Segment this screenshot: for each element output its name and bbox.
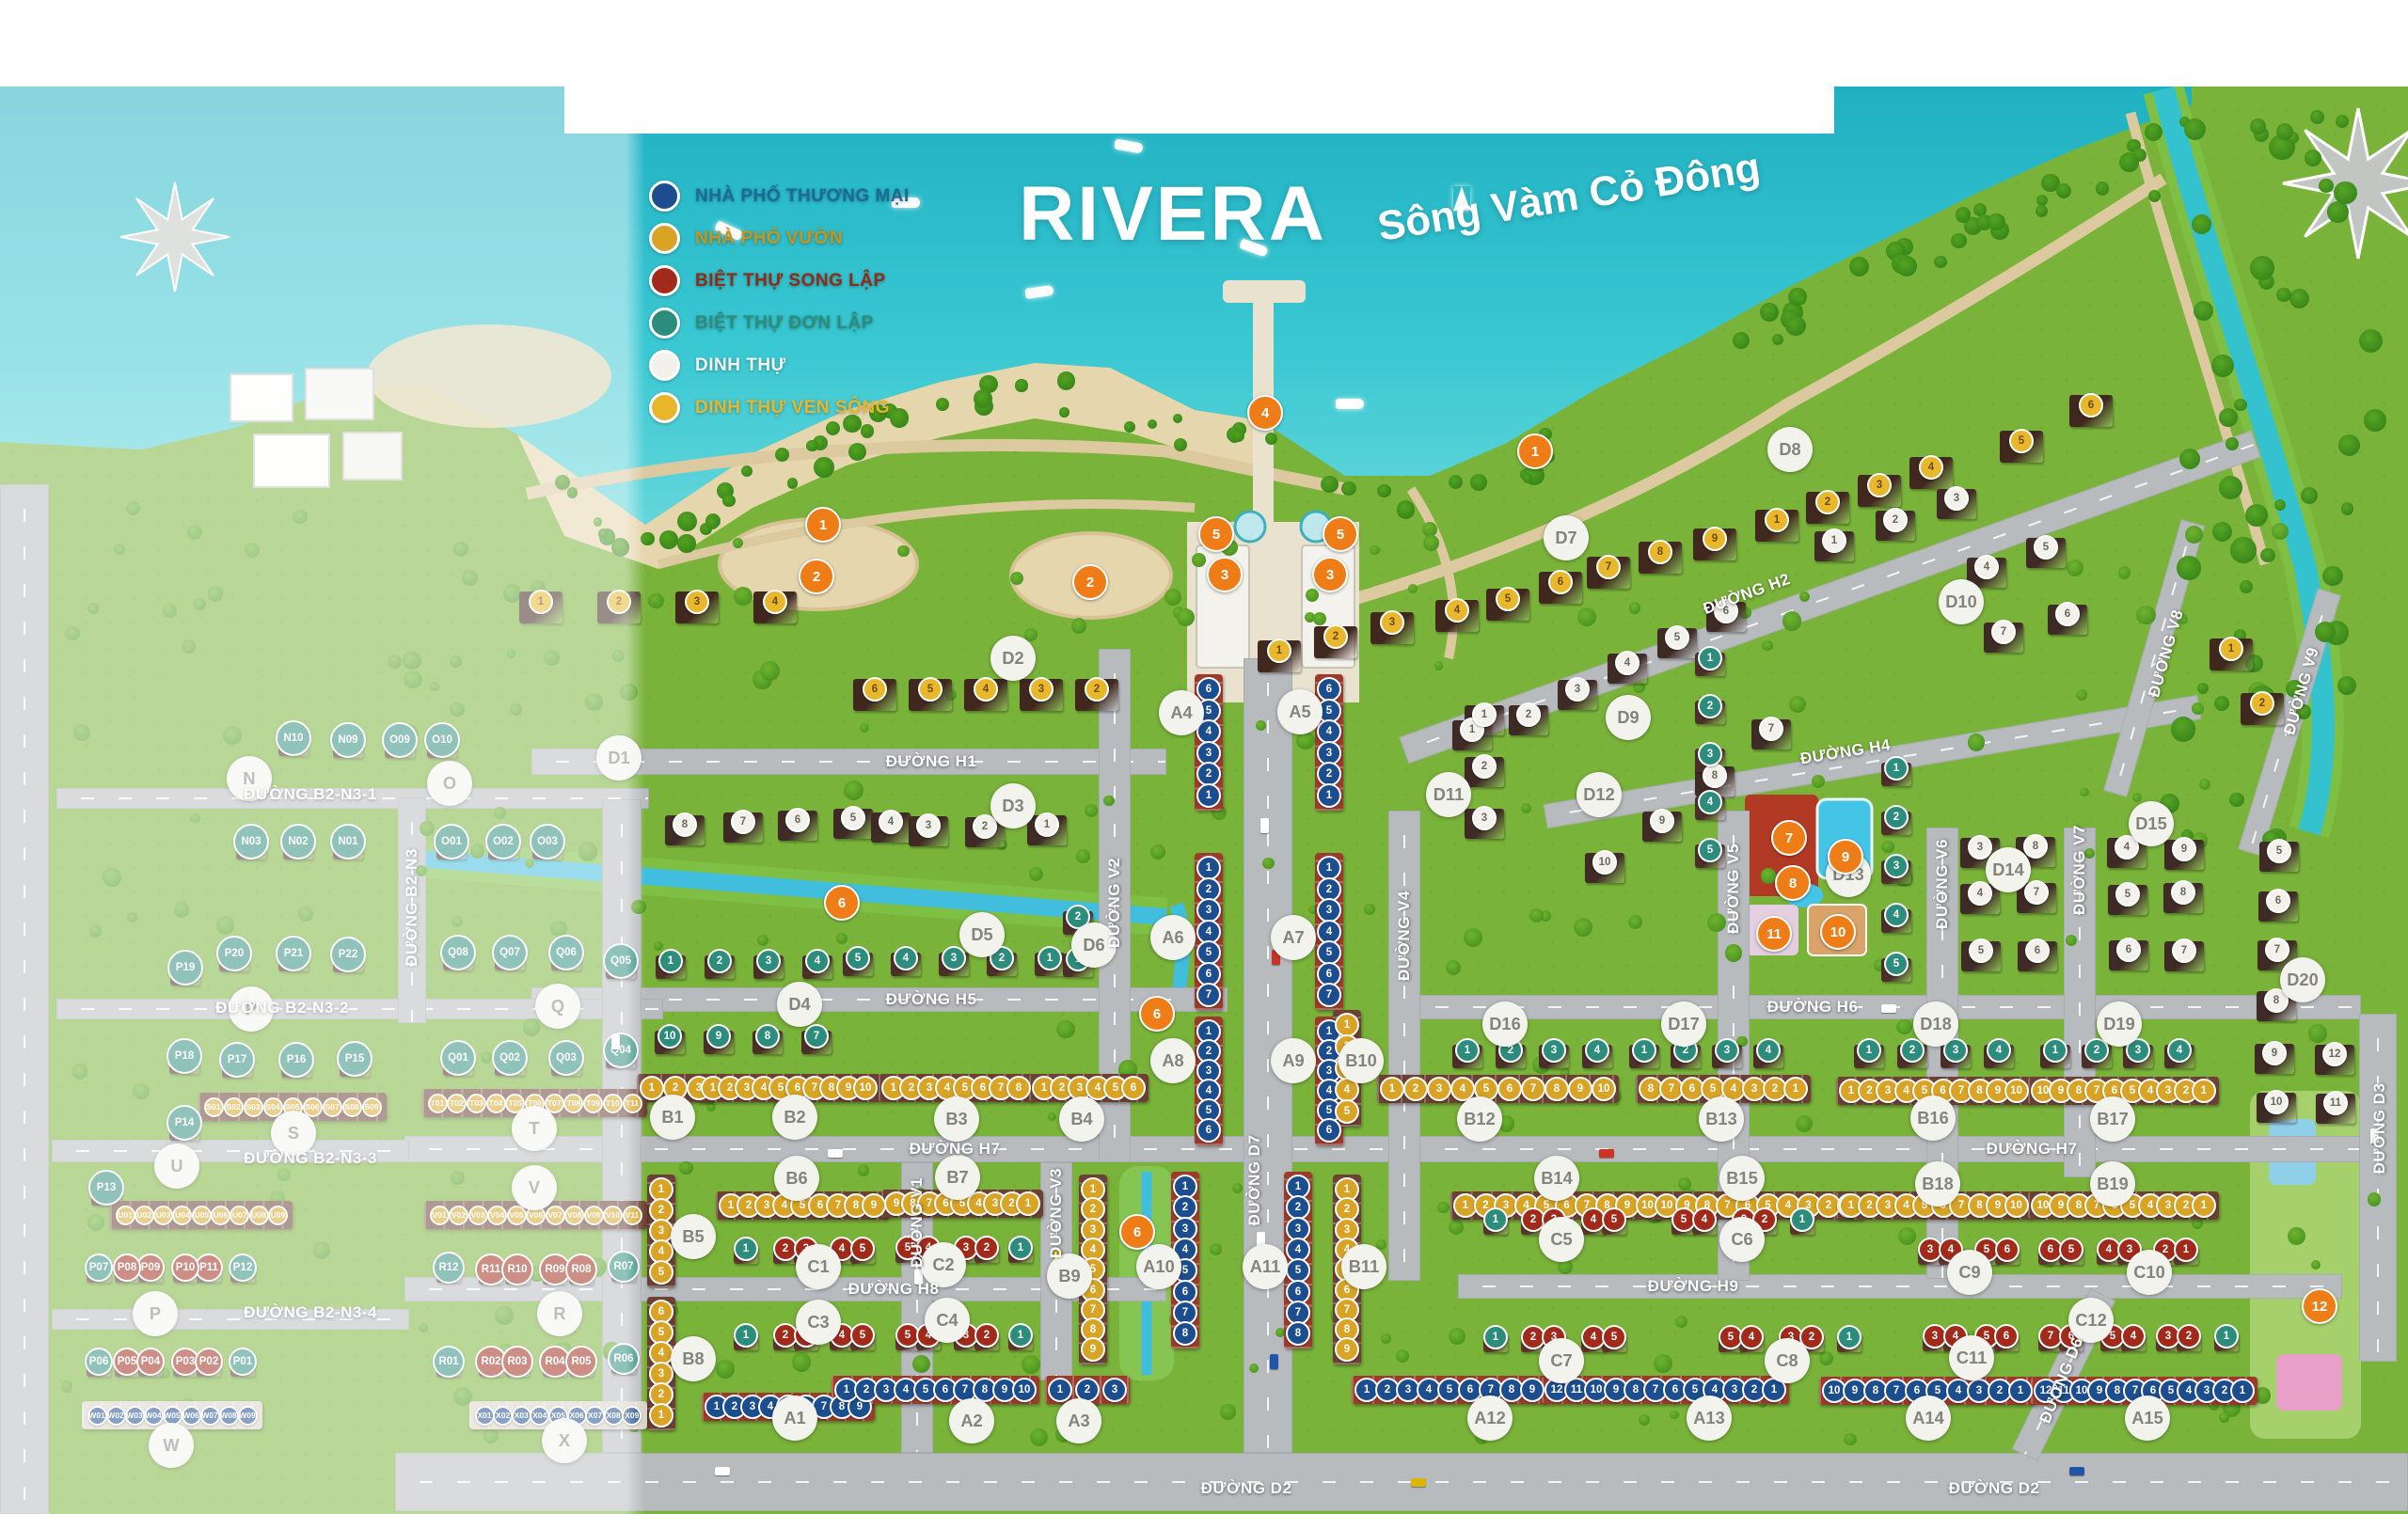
lot-circle-4[interactable]: 4: [1974, 555, 1999, 579]
amenity-marker-1[interactable]: 1: [805, 507, 841, 543]
lot-circle-1[interactable]: 1: [1317, 783, 1341, 808]
lot-circle-5[interactable]: 5: [2059, 1238, 2083, 1262]
lot-circle-1[interactable]: 1: [1016, 1191, 1040, 1216]
lot-circle-R01[interactable]: R01: [433, 1346, 465, 1378]
lot-circle-5[interactable]: 5: [2115, 882, 2140, 907]
lot-circle-3[interactable]: 3: [1472, 806, 1497, 830]
lot-circle-3[interactable]: 3: [1698, 742, 1722, 766]
lot-circle-U06[interactable]: U06: [211, 1206, 230, 1225]
lot-circle-2[interactable]: 2: [1698, 694, 1722, 718]
lot-circle-1[interactable]: 1: [1196, 783, 1221, 808]
lot-circle-1[interactable]: 1: [1822, 528, 1846, 553]
lot-circle-V03[interactable]: V03: [468, 1206, 488, 1225]
lot-circle-9[interactable]: 9: [1520, 1378, 1545, 1402]
lot-circle-2[interactable]: 2: [707, 949, 732, 973]
amenity-marker-2[interactable]: 2: [799, 559, 834, 594]
lot-circle-3[interactable]: 3: [1427, 1077, 1451, 1101]
block-label-D5[interactable]: D5: [959, 912, 1005, 957]
lot-circle-4[interactable]: 4: [2121, 1324, 2146, 1348]
amenity-marker-9[interactable]: 9: [1828, 839, 1863, 875]
lot-circle-Q02[interactable]: Q02: [492, 1040, 528, 1076]
lot-circle-U02[interactable]: U02: [135, 1206, 154, 1225]
lot-circle-1[interactable]: 1: [2230, 1379, 2255, 1403]
lot-circle-5[interactable]: 5: [2034, 535, 2058, 560]
block-label-C7[interactable]: C7: [1539, 1338, 1584, 1383]
lot-circle-10[interactable]: 10: [1592, 1077, 1616, 1101]
lot-circle-5[interactable]: 5: [1496, 587, 1520, 611]
lot-circle-P01[interactable]: P01: [229, 1348, 257, 1376]
lot-circle-6[interactable]: 6: [2025, 938, 2050, 963]
lot-circle-1[interactable]: 1: [1380, 1077, 1404, 1101]
lot-circle-3[interactable]: 3: [1542, 1038, 1566, 1063]
lot-circle-6[interactable]: 6: [1497, 1077, 1522, 1101]
lot-circle-R08[interactable]: R08: [565, 1254, 597, 1285]
lot-circle-N03[interactable]: N03: [233, 824, 269, 860]
lot-circle-X07[interactable]: X07: [585, 1406, 605, 1426]
block-label-B18[interactable]: B18: [1915, 1161, 1960, 1206]
lot-circle-9[interactable]: 9: [1703, 527, 1727, 551]
lot-circle-N02[interactable]: N02: [280, 824, 316, 860]
block-label-D2[interactable]: D2: [990, 636, 1036, 681]
lot-circle-1[interactable]: 1: [734, 1237, 758, 1261]
lot-circle-X01[interactable]: X01: [475, 1406, 495, 1426]
block-label-B7[interactable]: B7: [935, 1155, 980, 1200]
lot-circle-7[interactable]: 7: [1991, 620, 2016, 644]
block-label-A9[interactable]: A9: [1271, 1038, 1316, 1083]
lot-circle-S03[interactable]: S03: [244, 1097, 263, 1117]
lot-circle-6[interactable]: 6: [1548, 570, 1573, 594]
lot-circle-T04[interactable]: T04: [486, 1094, 506, 1113]
lot-circle-O01[interactable]: O01: [434, 824, 469, 860]
amenity-marker-6[interactable]: 6: [824, 885, 860, 921]
lot-circle-T10[interactable]: T10: [603, 1094, 623, 1113]
lot-circle-3[interactable]: 3: [756, 949, 781, 973]
lot-circle-9[interactable]: 9: [2172, 837, 2196, 861]
block-label-B2[interactable]: B2: [772, 1095, 817, 1140]
block-label-B5[interactable]: B5: [671, 1214, 716, 1259]
lot-circle-W06[interactable]: W06: [182, 1406, 201, 1426]
lot-circle-1[interactable]: 1: [2192, 1193, 2216, 1218]
lot-circle-1[interactable]: 1: [1790, 1207, 1814, 1232]
lot-circle-5[interactable]: 5: [2009, 429, 2034, 453]
block-label-A10[interactable]: A10: [1136, 1244, 1181, 1289]
block-label-D14[interactable]: D14: [1986, 847, 2031, 892]
lot-circle-S09[interactable]: S09: [362, 1097, 382, 1117]
lot-circle-T11[interactable]: T11: [623, 1094, 642, 1113]
block-label-B11[interactable]: B11: [1341, 1244, 1386, 1289]
block-label-W[interactable]: W: [149, 1423, 194, 1468]
lot-circle-1[interactable]: 1: [1008, 1323, 1033, 1348]
lot-circle-V04[interactable]: V04: [487, 1206, 507, 1225]
lot-circle-4[interactable]: 4: [763, 590, 787, 614]
lot-circle-P07[interactable]: P07: [85, 1254, 113, 1282]
lot-circle-5[interactable]: 5: [918, 677, 943, 702]
lot-circle-6[interactable]: 6: [1196, 1118, 1221, 1143]
lot-circle-S01[interactable]: S01: [204, 1097, 224, 1117]
lot-circle-W02[interactable]: W02: [106, 1406, 126, 1426]
block-label-B15[interactable]: B15: [1719, 1156, 1765, 1201]
lot-circle-3[interactable]: 3: [1565, 677, 1590, 702]
lot-circle-3[interactable]: 3: [1867, 473, 1892, 497]
block-label-B9[interactable]: B9: [1047, 1254, 1092, 1299]
lot-circle-5[interactable]: 5: [1335, 1099, 1359, 1124]
block-label-D12[interactable]: D12: [1576, 772, 1622, 817]
block-label-D1[interactable]: D1: [596, 735, 642, 781]
lot-circle-V11[interactable]: V11: [623, 1206, 642, 1225]
block-label-B12[interactable]: B12: [1457, 1096, 1502, 1142]
lot-circle-5[interactable]: 5: [841, 806, 865, 830]
lot-circle-8[interactable]: 8: [673, 812, 697, 837]
lot-circle-P12[interactable]: P12: [229, 1254, 257, 1282]
lot-circle-7[interactable]: 7: [2024, 880, 2049, 905]
lot-circle-7[interactable]: 7: [1521, 1077, 1545, 1101]
lot-circle-Q08[interactable]: Q08: [440, 935, 476, 970]
lot-circle-R12[interactable]: R12: [433, 1252, 465, 1284]
lot-circle-X03[interactable]: X03: [512, 1406, 531, 1426]
lot-circle-P20[interactable]: P20: [216, 936, 252, 971]
amenity-marker-1[interactable]: 1: [1517, 434, 1553, 469]
lot-circle-8[interactable]: 8: [1173, 1321, 1197, 1346]
lot-circle-8[interactable]: 8: [2023, 834, 2048, 859]
lot-circle-U05[interactable]: U05: [192, 1206, 212, 1225]
lot-circle-4[interactable]: 4: [1756, 1038, 1781, 1063]
lot-circle-4[interactable]: 4: [1615, 651, 1640, 675]
block-label-C9[interactable]: C9: [1947, 1250, 1992, 1295]
lot-circle-V10[interactable]: V10: [603, 1206, 623, 1225]
lot-circle-4[interactable]: 4: [1692, 1207, 1717, 1232]
lot-circle-P13[interactable]: P13: [88, 1170, 124, 1206]
block-label-V[interactable]: V: [512, 1165, 557, 1210]
lot-circle-R05[interactable]: R05: [565, 1346, 597, 1378]
lot-circle-P19[interactable]: P19: [167, 950, 203, 986]
lot-circle-T09[interactable]: T09: [583, 1094, 603, 1113]
amenity-marker-7[interactable]: 7: [1771, 820, 1807, 856]
lot-circle-5[interactable]: 5: [846, 946, 870, 970]
lot-circle-W01[interactable]: W01: [87, 1406, 107, 1426]
block-label-A11[interactable]: A11: [1243, 1244, 1288, 1289]
block-label-A7[interactable]: A7: [1271, 915, 1316, 960]
lot-circle-1[interactable]: 1: [1008, 1236, 1033, 1260]
lot-circle-R07[interactable]: R07: [608, 1251, 640, 1283]
lot-circle-U03[interactable]: U03: [153, 1206, 173, 1225]
lot-circle-1[interactable]: 1: [529, 590, 553, 614]
block-label-A4[interactable]: A4: [1159, 690, 1204, 735]
lot-circle-5[interactable]: 5: [1969, 938, 1993, 963]
block-label-C4[interactable]: C4: [925, 1298, 970, 1343]
amenity-marker-10[interactable]: 10: [1820, 914, 1856, 950]
lot-circle-2[interactable]: 2: [974, 1236, 999, 1260]
lot-circle-2[interactable]: 2: [1900, 1038, 1925, 1063]
lot-circle-2[interactable]: 2: [1085, 677, 1109, 702]
lot-circle-4[interactable]: 4: [1445, 598, 1469, 623]
lot-circle-9[interactable]: 9: [706, 1024, 731, 1049]
lot-circle-7[interactable]: 7: [1596, 555, 1621, 579]
lot-circle-4[interactable]: 4: [1739, 1325, 1764, 1349]
lot-circle-1[interactable]: 1: [1884, 756, 1909, 781]
block-label-D8[interactable]: D8: [1767, 427, 1813, 472]
lot-circle-W08[interactable]: W08: [219, 1406, 239, 1426]
lot-circle-1[interactable]: 1: [640, 1076, 664, 1100]
lot-circle-1[interactable]: 1: [1048, 1378, 1072, 1402]
lot-circle-3[interactable]: 3: [942, 946, 966, 970]
lot-circle-5[interactable]: 5: [1602, 1207, 1626, 1232]
lot-circle-R10[interactable]: R10: [501, 1254, 533, 1285]
lot-circle-X08[interactable]: X08: [604, 1406, 624, 1426]
block-label-B1[interactable]: B1: [650, 1095, 695, 1140]
lot-circle-3[interactable]: 3: [1944, 486, 1969, 511]
amenity-marker-3[interactable]: 3: [1312, 557, 1348, 592]
block-label-B13[interactable]: B13: [1699, 1096, 1744, 1142]
lot-circle-1[interactable]: 1: [1765, 508, 1789, 532]
lot-circle-Q05[interactable]: Q05: [603, 943, 639, 979]
lot-circle-4[interactable]: 4: [1987, 1038, 2011, 1063]
block-label-X[interactable]: X: [542, 1418, 587, 1463]
lot-circle-R06[interactable]: R06: [608, 1343, 640, 1375]
block-label-D19[interactable]: D19: [2097, 1001, 2142, 1047]
lot-circle-10[interactable]: 10: [2004, 1193, 2029, 1218]
lot-circle-P14[interactable]: P14: [166, 1105, 202, 1141]
lot-circle-4[interactable]: 4: [1919, 455, 1943, 480]
lot-circle-9[interactable]: 9: [2262, 1041, 2287, 1065]
block-label-P[interactable]: P: [133, 1291, 178, 1336]
lot-circle-S08[interactable]: S08: [342, 1097, 362, 1117]
lot-circle-10[interactable]: 10: [2264, 1090, 2289, 1114]
lot-circle-T08[interactable]: T08: [563, 1094, 583, 1113]
lot-circle-1[interactable]: 1: [2219, 637, 2243, 661]
lot-circle-2[interactable]: 2: [1323, 624, 1348, 649]
lot-circle-O10[interactable]: O10: [424, 722, 460, 758]
amenity-marker-3[interactable]: 3: [1207, 557, 1243, 592]
lot-circle-1[interactable]: 1: [2043, 1038, 2067, 1063]
lot-circle-7[interactable]: 7: [804, 1024, 829, 1049]
lot-circle-1[interactable]: 1: [1783, 1077, 1808, 1101]
lot-circle-U01[interactable]: U01: [116, 1206, 135, 1225]
block-label-A6[interactable]: A6: [1150, 915, 1196, 960]
lot-circle-3[interactable]: 3: [1715, 1038, 1739, 1063]
block-label-A1[interactable]: A1: [772, 1396, 817, 1441]
lot-circle-8[interactable]: 8: [1648, 540, 1672, 564]
lot-circle-9[interactable]: 9: [1568, 1077, 1592, 1101]
lot-circle-T01[interactable]: T01: [428, 1094, 448, 1113]
lot-circle-P16[interactable]: P16: [278, 1042, 314, 1078]
lot-circle-7[interactable]: 7: [1759, 717, 1783, 741]
amenity-marker-6[interactable]: 6: [1139, 996, 1175, 1032]
lot-circle-P15[interactable]: P15: [337, 1041, 372, 1077]
lot-circle-3[interactable]: 3: [685, 590, 709, 614]
lot-circle-1[interactable]: 1: [2174, 1238, 2198, 1262]
block-label-C3[interactable]: C3: [796, 1300, 841, 1345]
lot-circle-2[interactable]: 2: [1403, 1077, 1428, 1101]
amenity-marker-5[interactable]: 5: [1198, 516, 1234, 552]
lot-circle-V02[interactable]: V02: [449, 1206, 468, 1225]
block-label-D4[interactable]: D4: [777, 982, 822, 1027]
lot-circle-U09[interactable]: U09: [268, 1206, 288, 1225]
lot-circle-1[interactable]: 1: [1038, 946, 1062, 970]
lot-circle-1[interactable]: 1: [1837, 1325, 1861, 1349]
lot-circle-7[interactable]: 7: [2172, 938, 2196, 963]
lot-circle-1[interactable]: 1: [2008, 1379, 2033, 1403]
lot-circle-P02[interactable]: P02: [195, 1348, 223, 1376]
lot-circle-P17[interactable]: P17: [219, 1042, 255, 1078]
lot-circle-6[interactable]: 6: [1317, 1118, 1341, 1143]
lot-circle-2[interactable]: 2: [1884, 805, 1909, 829]
lot-circle-8[interactable]: 8: [1703, 764, 1727, 788]
lot-circle-Q04[interactable]: Q04: [603, 1033, 639, 1068]
lot-circle-8[interactable]: 8: [755, 1024, 780, 1049]
block-label-B4[interactable]: B4: [1059, 1096, 1104, 1142]
block-label-A14[interactable]: A14: [1906, 1396, 1951, 1441]
lot-circle-T03[interactable]: T03: [467, 1094, 486, 1113]
lot-circle-N09[interactable]: N09: [330, 722, 366, 758]
lot-circle-6[interactable]: 6: [1121, 1076, 1146, 1100]
lot-circle-4[interactable]: 4: [879, 810, 903, 834]
lot-circle-2[interactable]: 2: [2177, 1324, 2201, 1348]
lot-circle-6[interactable]: 6: [863, 677, 887, 702]
lot-circle-W07[interactable]: W07: [200, 1406, 220, 1426]
amenity-marker-8[interactable]: 8: [1775, 865, 1811, 901]
lot-circle-6[interactable]: 6: [2266, 889, 2290, 913]
block-label-D18[interactable]: D18: [1913, 1001, 1958, 1047]
block-label-B3[interactable]: B3: [934, 1096, 979, 1142]
lot-circle-5[interactable]: 5: [1698, 838, 1722, 862]
lot-circle-4[interactable]: 4: [1698, 790, 1722, 814]
lot-circle-4[interactable]: 4: [1884, 903, 1909, 927]
block-label-R[interactable]: R: [537, 1291, 582, 1336]
block-label-A5[interactable]: A5: [1277, 689, 1323, 734]
lot-circle-V01[interactable]: V01: [430, 1206, 450, 1225]
block-label-A15[interactable]: A15: [2125, 1396, 2170, 1441]
lot-circle-X02[interactable]: X02: [493, 1406, 513, 1426]
lot-circle-9[interactable]: 9: [862, 1193, 886, 1218]
block-label-C8[interactable]: C8: [1765, 1338, 1810, 1383]
lot-circle-1[interactable]: 1: [1857, 1038, 1881, 1063]
lot-circle-U07[interactable]: U07: [230, 1206, 249, 1225]
lot-circle-1[interactable]: 1: [734, 1323, 758, 1348]
lot-circle-8[interactable]: 8: [1545, 1077, 1569, 1101]
lot-circle-1[interactable]: 1: [1472, 702, 1497, 727]
block-label-D9[interactable]: D9: [1606, 695, 1651, 740]
lot-circle-3[interactable]: 3: [916, 813, 941, 838]
block-label-U[interactable]: U: [154, 1143, 199, 1189]
block-label-B16[interactable]: B16: [1910, 1096, 1956, 1141]
lot-circle-9[interactable]: 9: [1650, 809, 1674, 833]
lot-circle-Q03[interactable]: Q03: [548, 1040, 584, 1076]
amenity-marker-2[interactable]: 2: [1072, 564, 1108, 600]
lot-circle-3[interactable]: 3: [1380, 610, 1404, 635]
amenity-marker-12[interactable]: 12: [2302, 1288, 2337, 1324]
block-label-A3[interactable]: A3: [1056, 1398, 1101, 1443]
lot-circle-8[interactable]: 8: [1286, 1321, 1310, 1346]
lot-circle-5[interactable]: 5: [649, 1260, 673, 1285]
lot-circle-3[interactable]: 3: [1968, 835, 1992, 860]
lot-circle-5[interactable]: 5: [1602, 1325, 1626, 1349]
lot-circle-10[interactable]: 10: [1592, 850, 1617, 875]
lot-circle-P06[interactable]: P06: [85, 1348, 113, 1376]
lot-circle-X09[interactable]: X09: [622, 1406, 642, 1426]
block-label-B10[interactable]: B10: [1339, 1038, 1384, 1083]
lot-circle-T02[interactable]: T02: [447, 1094, 467, 1113]
lot-circle-7[interactable]: 7: [1196, 983, 1221, 1007]
lot-circle-V09[interactable]: V09: [584, 1206, 604, 1225]
lot-circle-1[interactable]: 1: [1483, 1325, 1508, 1349]
lot-circle-6[interactable]: 6: [2116, 938, 2141, 962]
lot-circle-N01[interactable]: N01: [330, 824, 366, 860]
block-label-C1[interactable]: C1: [796, 1244, 841, 1289]
block-label-A13[interactable]: A13: [1687, 1396, 1732, 1441]
lot-circle-5[interactable]: 5: [850, 1237, 875, 1261]
lot-circle-3[interactable]: 3: [1884, 854, 1909, 878]
block-label-B19[interactable]: B19: [2090, 1161, 2135, 1206]
lot-circle-U04[interactable]: U04: [172, 1206, 192, 1225]
lot-circle-P22[interactable]: P22: [330, 937, 366, 972]
lot-circle-1[interactable]: 1: [658, 949, 683, 973]
lot-circle-3[interactable]: 3: [1029, 677, 1053, 702]
amenity-marker-11[interactable]: 11: [1756, 916, 1792, 952]
lot-circle-S02[interactable]: S02: [224, 1097, 244, 1117]
lot-circle-2[interactable]: 2: [1815, 490, 1840, 514]
lot-circle-N10[interactable]: N10: [276, 720, 311, 756]
lot-circle-10[interactable]: 10: [2004, 1079, 2029, 1103]
lot-circle-2[interactable]: 2: [1516, 702, 1541, 727]
lot-circle-W04[interactable]: W04: [144, 1406, 164, 1426]
lot-circle-P21[interactable]: P21: [276, 936, 311, 971]
lot-circle-Q06[interactable]: Q06: [548, 935, 584, 970]
lot-circle-1[interactable]: 1: [1698, 646, 1722, 670]
block-label-O[interactable]: O: [427, 761, 472, 806]
lot-circle-2[interactable]: 2: [1883, 508, 1908, 532]
block-label-B8[interactable]: B8: [671, 1336, 716, 1381]
lot-circle-4[interactable]: 4: [974, 677, 998, 702]
block-label-Q[interactable]: Q: [535, 984, 580, 1029]
lot-circle-1[interactable]: 1: [2214, 1324, 2239, 1348]
lot-circle-P18[interactable]: P18: [166, 1038, 202, 1074]
lot-circle-P08[interactable]: P08: [113, 1254, 141, 1282]
lot-circle-U08[interactable]: U08: [249, 1206, 269, 1225]
lot-circle-2[interactable]: 2: [2250, 691, 2274, 716]
block-label-D20[interactable]: D20: [2280, 957, 2325, 1002]
lot-circle-4[interactable]: 4: [805, 949, 830, 973]
block-label-B6[interactable]: B6: [774, 1156, 819, 1201]
lot-circle-4[interactable]: 4: [2167, 1038, 2192, 1063]
lot-circle-Q07[interactable]: Q07: [492, 935, 528, 970]
lot-circle-V05[interactable]: V05: [507, 1206, 527, 1225]
block-label-B17[interactable]: B17: [2090, 1096, 2135, 1142]
block-label-D16[interactable]: D16: [1482, 1001, 1528, 1047]
lot-circle-5[interactable]: 5: [2267, 839, 2291, 863]
block-label-D10[interactable]: D10: [1939, 579, 1984, 624]
lot-circle-8[interactable]: 8: [2171, 880, 2195, 905]
lot-circle-S07[interactable]: S07: [323, 1097, 342, 1117]
block-label-C10[interactable]: C10: [2127, 1250, 2172, 1295]
lot-circle-1[interactable]: 1: [649, 1403, 673, 1427]
lot-circle-1[interactable]: 1: [1632, 1038, 1656, 1063]
lot-circle-W09[interactable]: W09: [238, 1406, 258, 1426]
lot-circle-P10[interactable]: P10: [171, 1254, 199, 1282]
block-label-C6[interactable]: C6: [1719, 1217, 1765, 1262]
lot-circle-P04[interactable]: P04: [136, 1348, 165, 1376]
block-label-D3[interactable]: D3: [990, 783, 1036, 828]
lot-circle-V08[interactable]: V08: [564, 1206, 584, 1225]
lot-circle-2[interactable]: 2: [974, 1323, 999, 1348]
lot-circle-12[interactable]: 12: [2322, 1042, 2347, 1066]
lot-circle-1[interactable]: 1: [1483, 1207, 1508, 1232]
block-label-D11[interactable]: D11: [1426, 772, 1471, 817]
lot-circle-7[interactable]: 7: [731, 810, 755, 834]
lot-circle-1[interactable]: 1: [1035, 812, 1059, 837]
block-label-D15[interactable]: D15: [2129, 801, 2174, 846]
block-label-D7[interactable]: D7: [1544, 515, 1589, 560]
lot-circle-4[interactable]: 4: [894, 946, 918, 970]
